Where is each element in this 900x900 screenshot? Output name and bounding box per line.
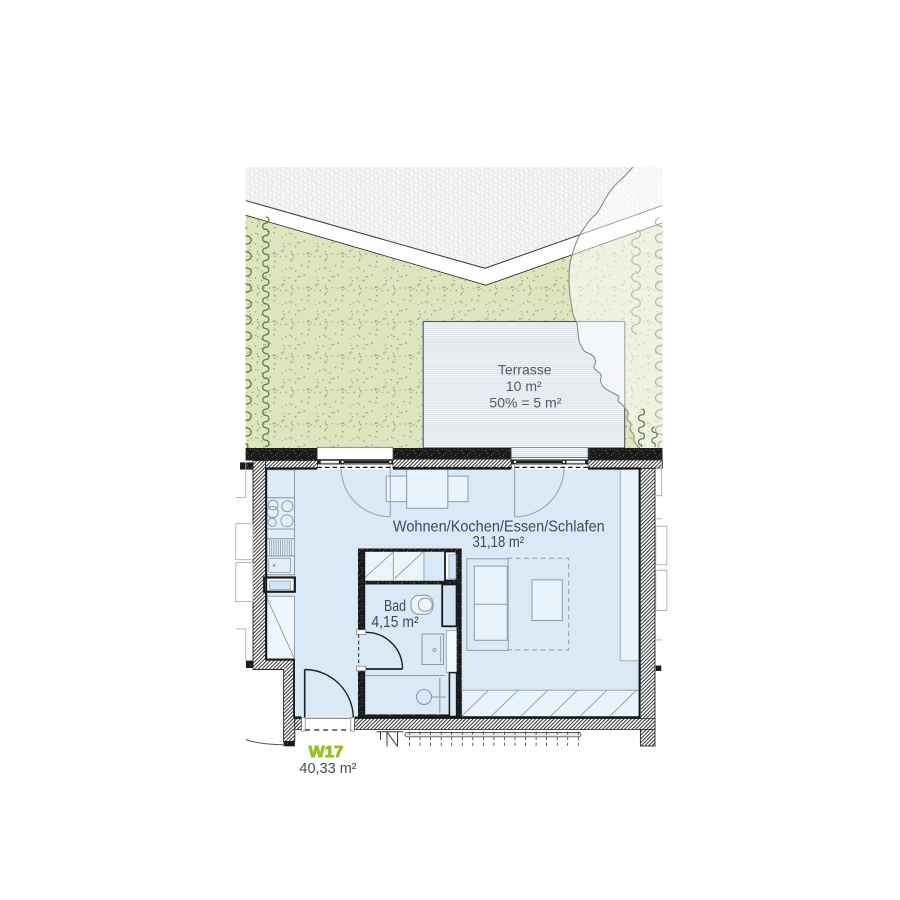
svg-text:10 m²: 10 m² [506,378,542,394]
svg-text:Terrasse: Terrasse [498,362,552,378]
svg-text:50% = 5 m²: 50% = 5 m² [489,395,561,411]
svg-text:Wohnen/Kochen/Essen/Schlafen: Wohnen/Kochen/Essen/Schlafen [393,518,605,536]
svg-text:40,33 m²: 40,33 m² [299,761,356,777]
svg-text:31,18 m²: 31,18 m² [472,534,524,551]
svg-text:Bad: Bad [384,597,406,615]
svg-text:W17: W17 [309,743,344,760]
svg-text:4,15 m²: 4,15 m² [371,614,418,631]
